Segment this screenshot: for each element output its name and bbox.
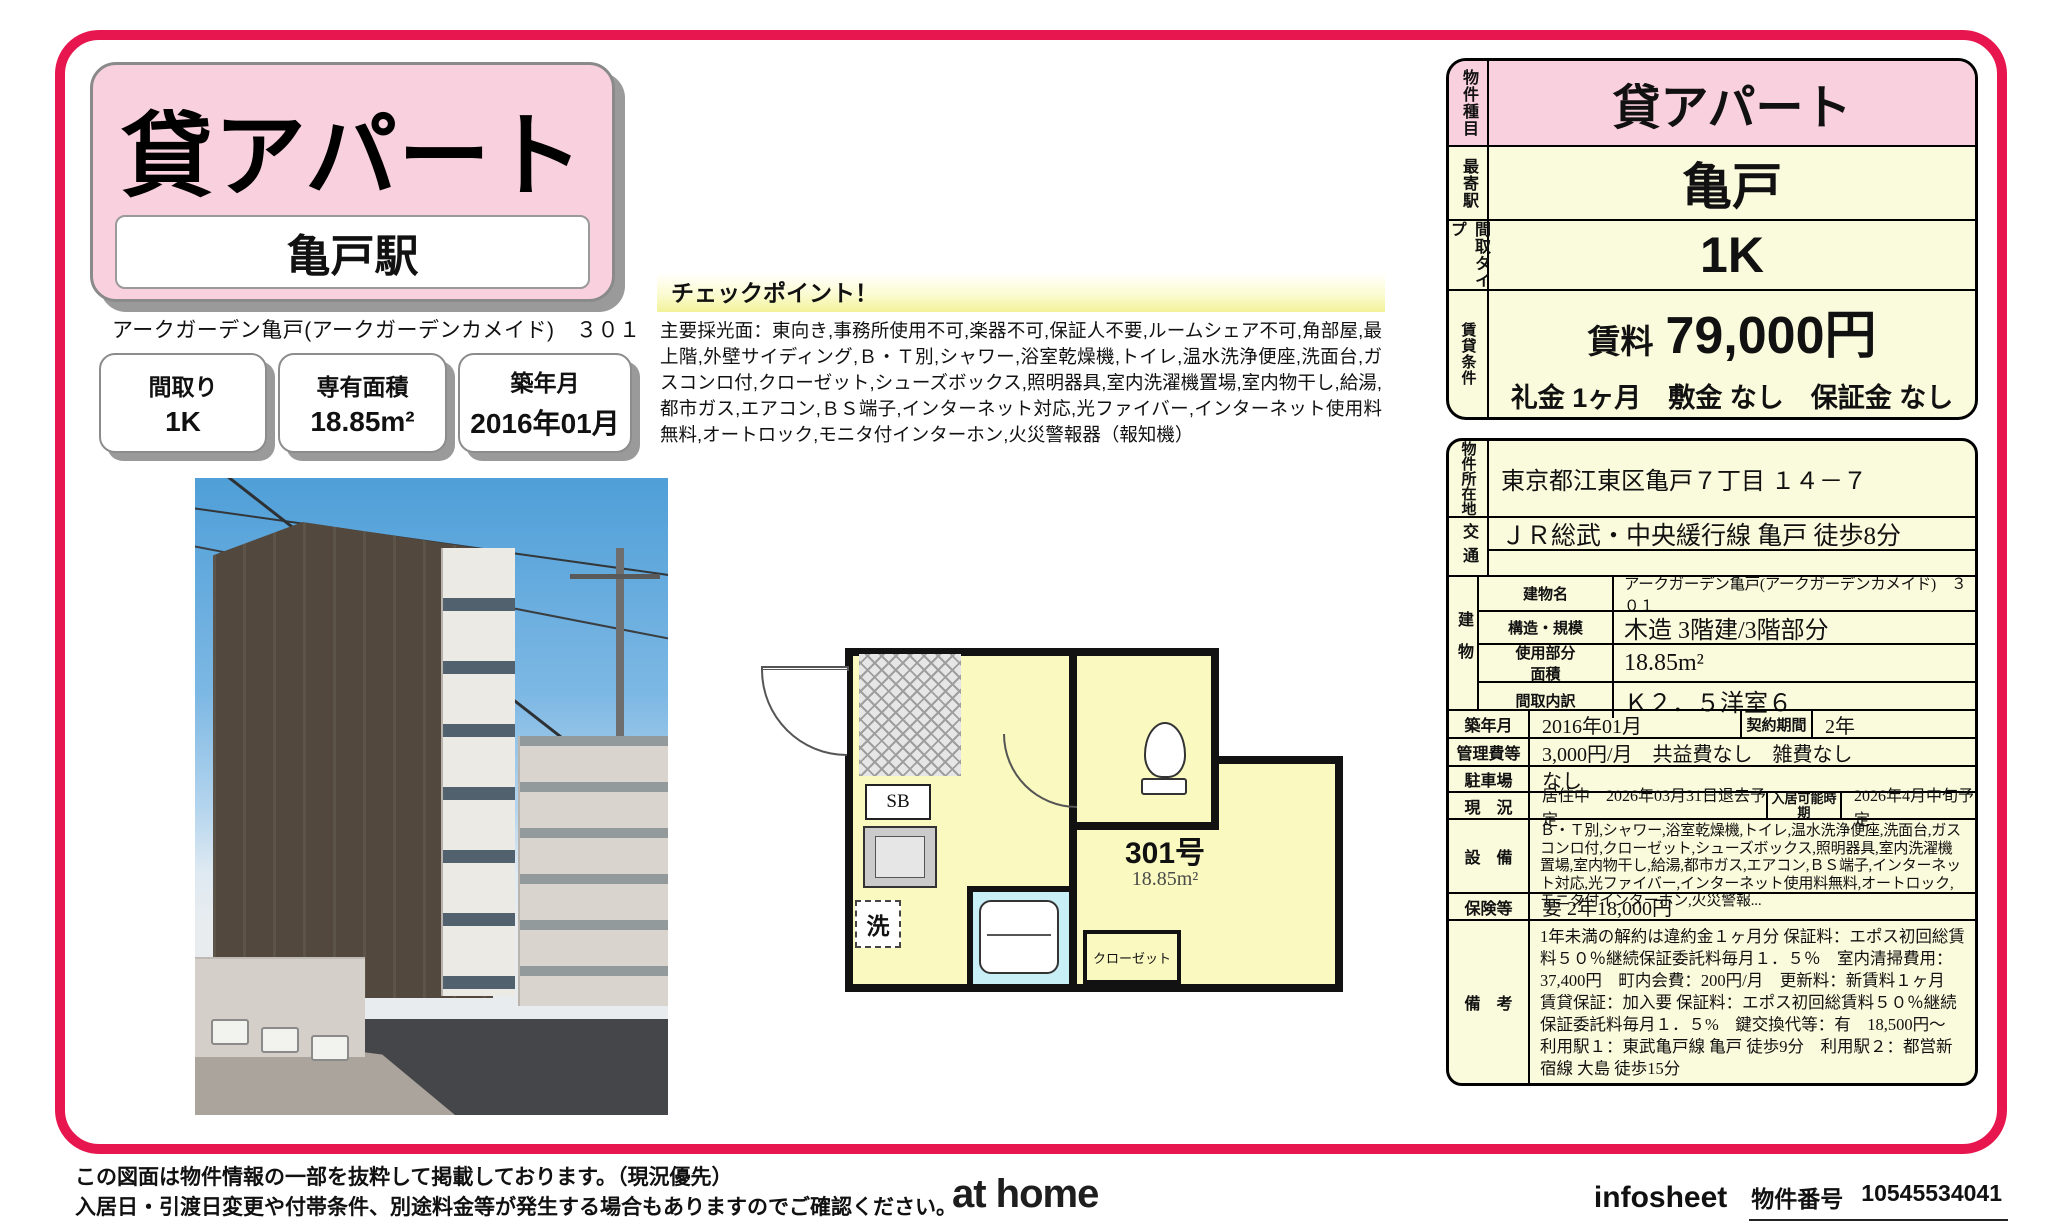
photo-rear-building [518,736,668,1006]
property-number-label: 物件番号 [1751,1180,1843,1214]
used-area-label-text: 使用部分面積 [1510,642,1582,684]
notes-label: 備 考 [1449,921,1530,1083]
floorplan-shoebox: SB [865,784,931,820]
floorplan-kitchen-sink [875,836,925,878]
detail-row-access: 交通 ＪＲ総武・中央緩行線 亀戸 徒歩8分 [1449,516,1975,575]
building-group-label: 建物 [1449,577,1479,709]
summary-table: 物件種目 貸アパート 最寄駅 亀戸 間取タイプ 1K 賃貸条件 賃料 79,00… [1446,58,1978,420]
building-name-label: 建物名 [1479,577,1614,610]
access-label: 交通 [1449,518,1489,575]
station-box: 亀戸駅 [115,215,590,289]
floorplan-bathtub [979,900,1059,974]
equipment-label: 設 備 [1449,820,1530,892]
status-label: 現 況 [1449,793,1530,818]
insurance-value: 要 2年18,000円 [1530,894,1975,919]
contract-label: 契約期間 [1742,711,1813,737]
checkpoint-title: チェックポイント！ [657,274,1385,312]
photo-utility-pole-arm [570,574,660,579]
summary-terms-label: 賃貸条件 [1449,291,1489,417]
title-card: 貸アパート 亀戸駅 [90,62,615,302]
parking-label: 駐車場 [1449,767,1530,791]
access-line-1: ＪＲ総武・中央緩行線 亀戸 徒歩8分 [1489,518,1975,551]
photo-building-white-face [441,548,515,996]
detail-table: 物件所在地 東京都江東区亀戸７丁目 １４－７ 交通 ＪＲ総武・中央緩行線 亀戸 … [1446,438,1978,1086]
footer-disclaimer-1: この図面は物件情報の一部を抜粋して掲載しております。（現況優先） [75,1161,733,1191]
contract-value: 2年 [1813,711,1975,737]
floorplan-toilet-tank [1141,778,1187,795]
station-name: 亀戸駅 [287,220,419,284]
badge-area-label: 専有面積 [317,368,409,402]
summary-terms-value: 賃料 79,000円 礼金 1ヶ月 敷金 なし 保証金 なし [1489,291,1975,417]
deposit-terms-line: 礼金 1ヶ月 敷金 なし 保証金 なし [1511,376,1954,415]
summary-station-value: 亀戸 [1489,147,1975,219]
floorplan-bathtub-line [987,934,1051,936]
movein-value: 2026年4月中旬予定 [1842,793,1975,818]
infosheet-label: infosheet [1594,1181,1727,1215]
used-area-row: 使用部分面積 18.85m² [1479,643,1975,681]
detail-row-building: 建物 建物名 アークガーデン亀戸(アークガーデンカメイド) ３０１ 構造・規模 … [1449,575,1975,709]
building-group: 建物名 アークガーデン亀戸(アークガーデンカメイド) ３０１ 構造・規模 木造 … [1479,577,1975,709]
building-name-value: アークガーデン亀戸(アークガーデンカメイド) ３０１ [1614,577,1975,610]
detail-row-insurance: 保険等 要 2年18,000円 [1449,892,1975,919]
photo-ac-unit-1 [211,1019,249,1045]
address-label: 物件所在地 [1449,441,1489,516]
floorplan-entrance-hatch [859,654,961,776]
movein-label: 入居可能時期 [1768,793,1842,818]
badge-area-value: 18.85m² [310,406,414,438]
infosheet-page: 貸アパート 亀戸駅 アークガーデン亀戸(アークガーデンカメイド) ３０１ 間取り… [0,0,2056,1222]
detail-row-status: 現 況 居住中 2026年03月31日退去予定 入居可能時期 2026年4月中旬… [1449,791,1975,818]
floorplan: SB 洗 301号 18.85m² クローゼット [845,638,1345,994]
address-value: 東京都江東区亀戸７丁目 １４－７ [1489,441,1975,516]
photo-ac-unit-3 [311,1035,349,1061]
property-number: 物件番号 10545534041 [1749,1180,2008,1221]
badge-built-label: 築年月 [511,364,580,398]
photo-ac-unit-2 [261,1027,299,1053]
summary-row-station: 最寄駅 亀戸 [1449,145,1975,219]
floorplan-washer-space: 洗 [855,900,901,948]
detail-row-built: 築年月 2016年01月 契約期間 2年 [1449,709,1975,737]
infosheet-block: infosheet 物件番号 10545534041 [1594,1180,2008,1221]
fees-label: 管理費等 [1449,739,1530,765]
summary-row-type: 物件種目 貸アパート [1449,61,1975,145]
summary-station-label: 最寄駅 [1449,147,1489,219]
built-label: 築年月 [1449,711,1530,737]
badge-built: 築年月 2016年01月 [458,353,632,453]
badge-area: 専有面積 18.85m² [278,353,447,453]
insurance-label: 保険等 [1449,894,1530,919]
built-value: 2016年01月 [1530,711,1742,737]
badge-layout-value: 1K [165,406,201,438]
floorplan-toilet-bowl [1144,722,1186,778]
property-name: アークガーデン亀戸(アークガーデンカメイド) ３０１ [112,314,640,344]
floorplan-unit-label: 301号 [1085,828,1245,872]
detail-row-fees: 管理費等 3,000円/月 共益費なし 雑費なし [1449,737,1975,765]
status-value: 居住中 2026年03月31日退去予定 [1530,793,1768,818]
badge-built-value: 2016年01月 [470,402,619,442]
summary-type-value: 貸アパート [1489,61,1975,145]
detail-row-notes: 備 考 1年未満の解約は違約金１ヶ月分 保証料：エポス初回総賃料５０％継続保証委… [1449,919,1975,1083]
detail-row-equipment: 設 備 Ｂ・Ｔ別,シャワー,浴室乾燥機,トイレ,温水洗浄便座,洗面台,ガスコンロ… [1449,818,1975,892]
footer-disclaimer-2: 入居日・引渡日変更や付帯条件、別途料金等が発生する場合もありますのでご確認くださ… [75,1191,957,1221]
fees-value: 3,000円/月 共益費なし 雑費なし [1530,739,1975,765]
rent-label: 賃料 [1587,315,1653,363]
building-name-row: 建物名 アークガーデン亀戸(アークガーデンカメイド) ３０１ [1479,577,1975,610]
summary-layout-value: 1K [1489,221,1975,289]
equipment-value: Ｂ・Ｔ別,シャワー,浴室乾燥機,トイレ,温水洗浄便座,洗面台,ガスコンロ付,クロ… [1530,820,1975,892]
structure-value: 木造 3階建/3階部分 [1614,612,1975,643]
property-type-title: 貸アパート [93,75,612,221]
building-photo [195,478,668,1115]
at-home-logo: at home [952,1172,1098,1217]
summary-row-terms: 賃貸条件 賃料 79,000円 礼金 1ヶ月 敷金 なし 保証金 なし [1449,289,1975,417]
detail-row-address: 物件所在地 東京都江東区亀戸７丁目 １４－７ [1449,441,1975,516]
badge-layout-label: 間取り [149,368,218,402]
structure-label: 構造・規模 [1479,612,1614,643]
used-area-label: 使用部分面積 [1479,645,1614,681]
access-box: ＪＲ総武・中央緩行線 亀戸 徒歩8分 [1489,518,1975,575]
property-number-value: 10545534041 [1861,1180,2002,1214]
rent-line: 賃料 79,000円 [1587,293,1876,368]
notes-value: 1年未満の解約は違約金１ヶ月分 保証料：エポス初回総賃料５０％継続保証委託料毎月… [1530,921,1975,1083]
badge-layout: 間取り 1K [99,353,267,453]
used-area-value: 18.85m² [1614,645,1975,681]
floorplan-closet: クローゼット [1083,930,1181,984]
summary-type-label: 物件種目 [1449,61,1489,145]
floorplan-toilet-room [1069,648,1219,830]
structure-row: 構造・規模 木造 3階建/3階部分 [1479,610,1975,643]
summary-row-layout: 間取タイプ 1K [1449,219,1975,289]
rent-value: 79,000円 [1665,293,1876,368]
summary-layout-label: 間取タイプ [1449,221,1489,289]
floorplan-area-label: 18.85m² [1085,868,1245,891]
checkpoint-body: 主要採光面：東向き,事務所使用不可,楽器不可,保証人不要,ルームシェア不可,角部… [660,318,1382,448]
